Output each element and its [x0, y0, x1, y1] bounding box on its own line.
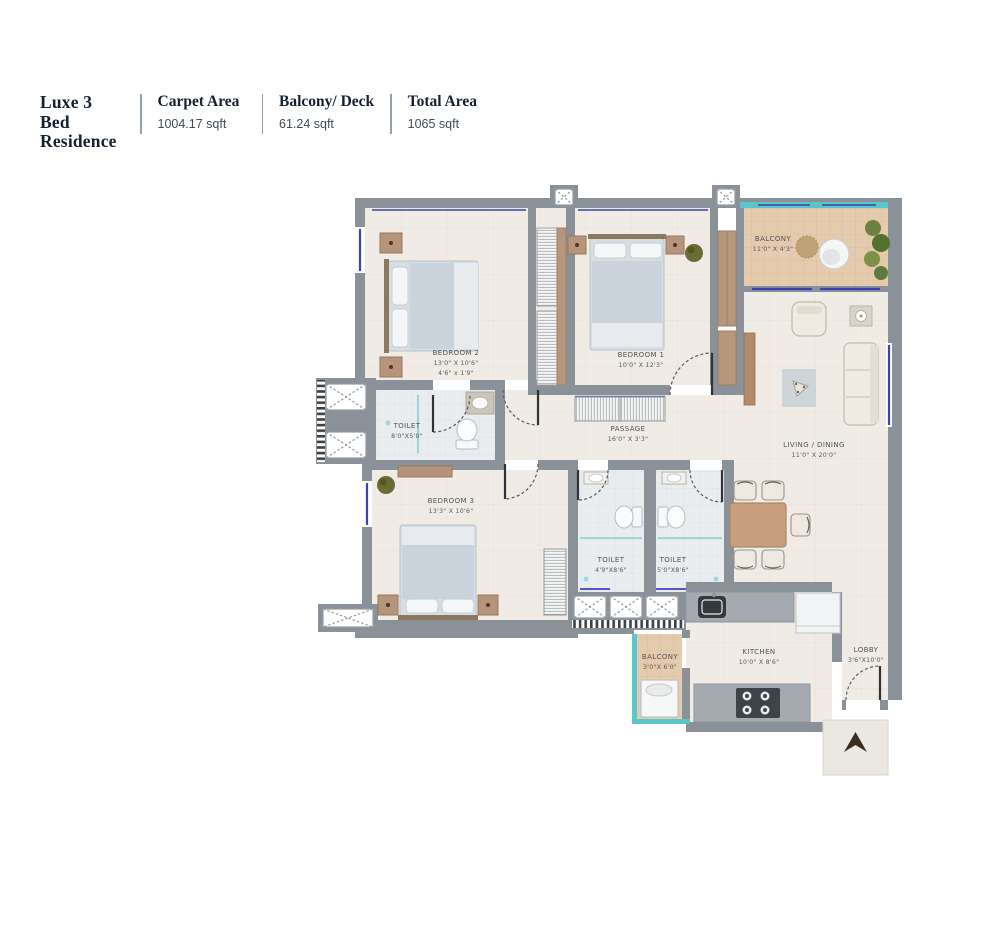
room-label-balcony: BALCONY: [755, 235, 792, 243]
room-label-bedroom2: BEDROOM 2: [433, 349, 480, 357]
entry: [823, 720, 888, 775]
shaft-x-icon: [323, 609, 373, 627]
shaft-x-icon: [574, 596, 606, 618]
coffee-table-icon: [782, 369, 816, 407]
wardrobe-icon: [537, 311, 557, 385]
room-label-balcony: BALCONY: [642, 653, 679, 661]
stat-label: Carpet Area: [158, 93, 246, 111]
shaft-x-icon: [646, 596, 678, 618]
shower-icon: [584, 577, 589, 582]
balcony-glass: [632, 634, 637, 724]
wardrobe-icon: [718, 331, 736, 385]
armchair-icon: [792, 302, 826, 336]
wc-icon: [615, 506, 642, 528]
room-dim: 3'6"X10'0": [848, 657, 884, 664]
room-dim: 8'0"X5'0": [391, 433, 423, 440]
dining-table-icon: [730, 503, 786, 547]
stat-carpet-area: Carpet Area 1004.17 sqft: [158, 93, 246, 131]
wc-icon: [658, 506, 685, 528]
room-dim: 3'0"X 6'0": [643, 664, 677, 671]
room-label-toilet: TOILET: [393, 422, 421, 430]
room-label-bedroom3: BEDROOM 3: [428, 497, 475, 505]
shaft-x-icon: [326, 384, 366, 410]
plant-icon: [377, 476, 395, 494]
duct-strip: [572, 620, 684, 628]
room-label-bedroom1: BEDROOM 1: [618, 351, 665, 359]
room-dim: 4'9"X8'6": [595, 567, 627, 574]
balcony-glass: [632, 719, 690, 724]
shower-icon: [386, 421, 391, 426]
plan-header: Luxe 3 Bed Residence Carpet Area 1004.17…: [40, 93, 496, 152]
plan-title: Luxe 3 Bed Residence: [40, 93, 124, 152]
tv-unit-icon: [744, 333, 755, 405]
plan-title-line1: Luxe 3 Bed: [40, 93, 124, 132]
header-divider: [262, 94, 264, 134]
room-label-passage: PASSAGE: [611, 425, 646, 433]
room-label-living: LIVING / DINING: [783, 441, 845, 449]
room-dim: 10'0" X 8'6": [739, 659, 780, 666]
washing-machine-icon: [641, 680, 678, 717]
hob-icon: [736, 688, 780, 718]
stat-value: 1004.17 sqft: [158, 117, 246, 131]
shaft-x-icon: [717, 189, 735, 205]
bed-icon: [398, 525, 478, 620]
plan-title-line2: Residence: [40, 132, 124, 152]
wardrobe-icon: [537, 228, 557, 306]
stat-value: 1065 sqft: [408, 117, 496, 131]
shaft-x-icon: [326, 432, 366, 458]
header-divider: [390, 94, 392, 134]
sofa-icon: [844, 343, 878, 425]
stat-label: Balcony/ Deck: [279, 93, 374, 111]
room-label-toilet: TOILET: [659, 556, 687, 564]
bed-icon: [384, 259, 478, 353]
room-dim: 13'0" X 10'6": [434, 360, 479, 367]
room-label-lobby: LOBBY: [854, 646, 879, 654]
round-rug-icon: [796, 236, 818, 258]
stat-total-area: Total Area 1065 sqft: [408, 93, 496, 131]
floor-plan: BEDROOM 2 13'0" X 10'6" 4'6" x 1'9" BEDR…: [310, 183, 908, 783]
floor-plan-page: Luxe 3 Bed Residence Carpet Area 1004.17…: [0, 0, 984, 934]
room-dim: 10'0" X 12'3": [619, 362, 664, 369]
header-divider: [140, 94, 142, 134]
shower-icon: [714, 577, 719, 582]
room-dim: 4'6" x 1'9": [438, 370, 474, 377]
side-table-icon: [850, 306, 872, 326]
room-label-toilet: TOILET: [597, 556, 625, 564]
sink-icon: [698, 593, 726, 618]
stat-balcony-deck: Balcony/ Deck 61.24 sqft: [279, 93, 374, 131]
shaft-x-icon: [555, 189, 573, 205]
plant-icon: [685, 244, 703, 262]
refrigerator-icon: [796, 593, 840, 633]
room-label-kitchen: KITCHEN: [742, 648, 775, 656]
room-dim: 11'0" X 20'0": [792, 452, 837, 459]
room-dim: 11'0" X 4'3": [753, 246, 794, 253]
shaft-x-icon: [610, 596, 642, 618]
room-dim: 13'3" X 10'6": [429, 508, 474, 515]
wc-icon: [456, 419, 478, 449]
bed-icon: [588, 234, 666, 350]
stat-value: 61.24 sqft: [279, 117, 374, 131]
room-dim: 16'0" X 3'3": [608, 436, 649, 443]
bench-icon: [398, 466, 452, 477]
stat-label: Total Area: [408, 93, 496, 111]
room-dim: 5'0"X8'6": [657, 567, 689, 574]
duct-strip: [317, 380, 325, 462]
papasan-chair-icon: [819, 239, 849, 269]
dresser-icon: [544, 549, 566, 615]
